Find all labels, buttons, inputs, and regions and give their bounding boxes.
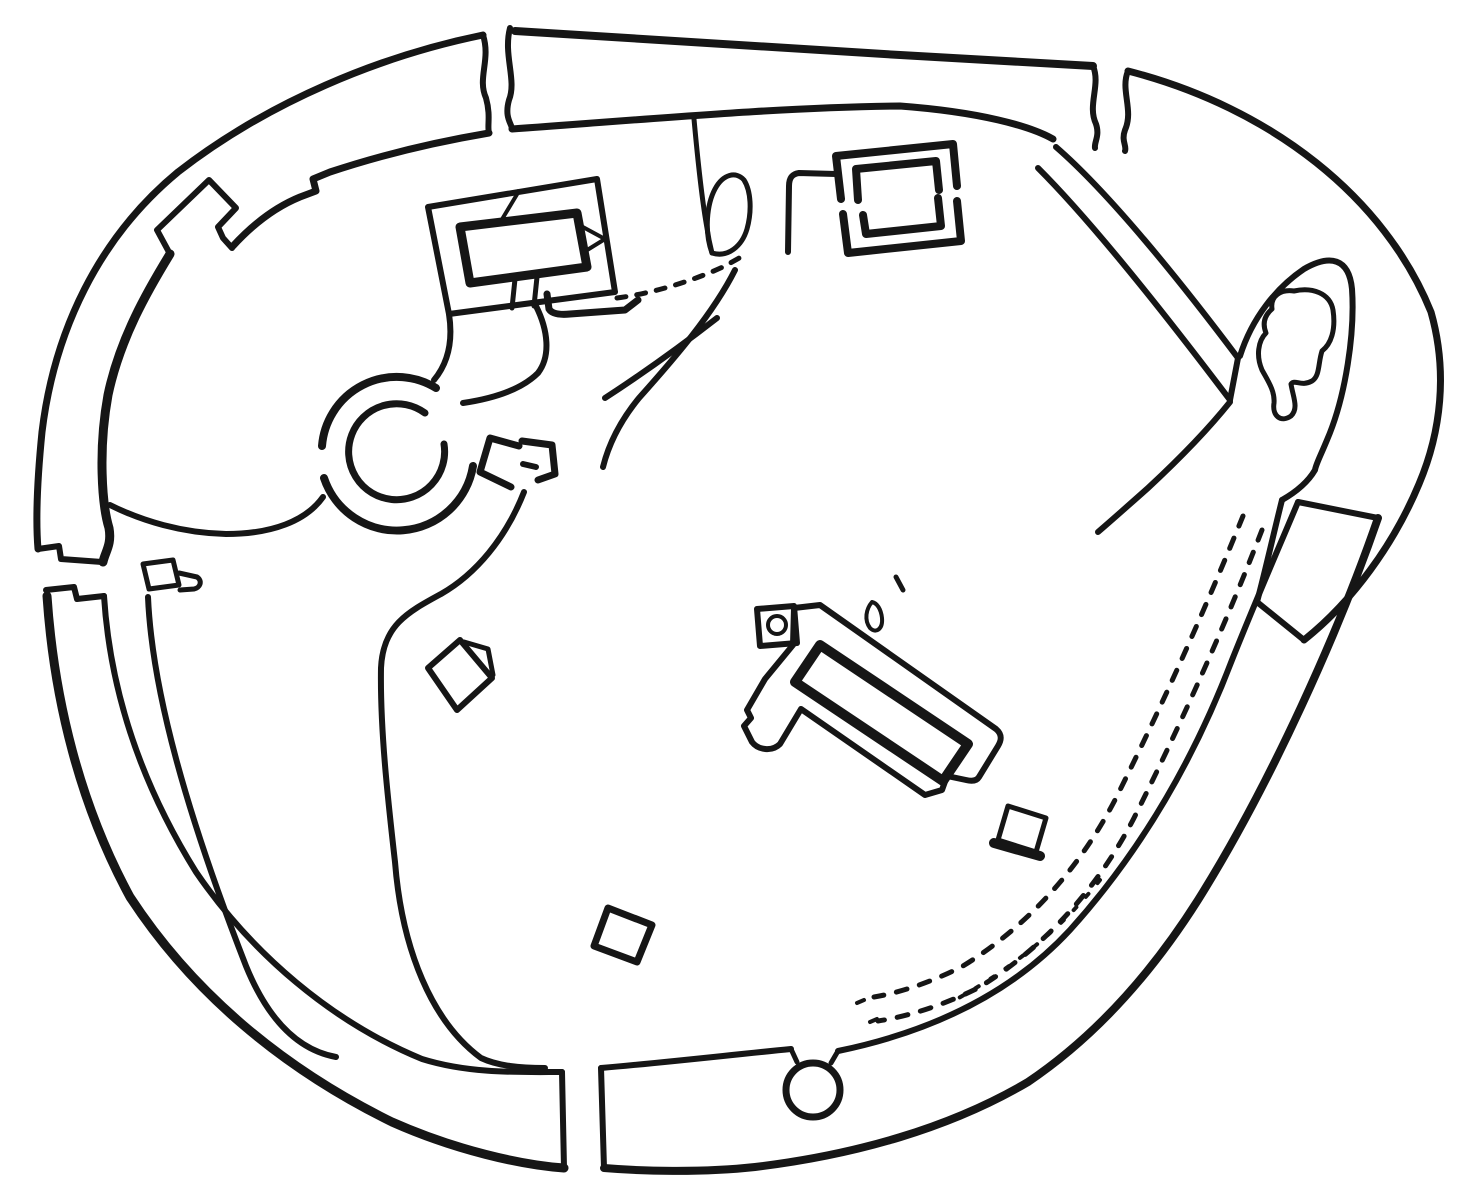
nw-building-door-right — [534, 277, 537, 306]
site-plan-figure — [0, 0, 1463, 1184]
site-plan-page — [0, 0, 1463, 1184]
nw-building-door-left — [512, 279, 515, 308]
ring-annex-notch — [523, 464, 536, 467]
south-gap-left-cap — [562, 1072, 564, 1168]
south-gap-right-cap — [601, 1068, 604, 1168]
